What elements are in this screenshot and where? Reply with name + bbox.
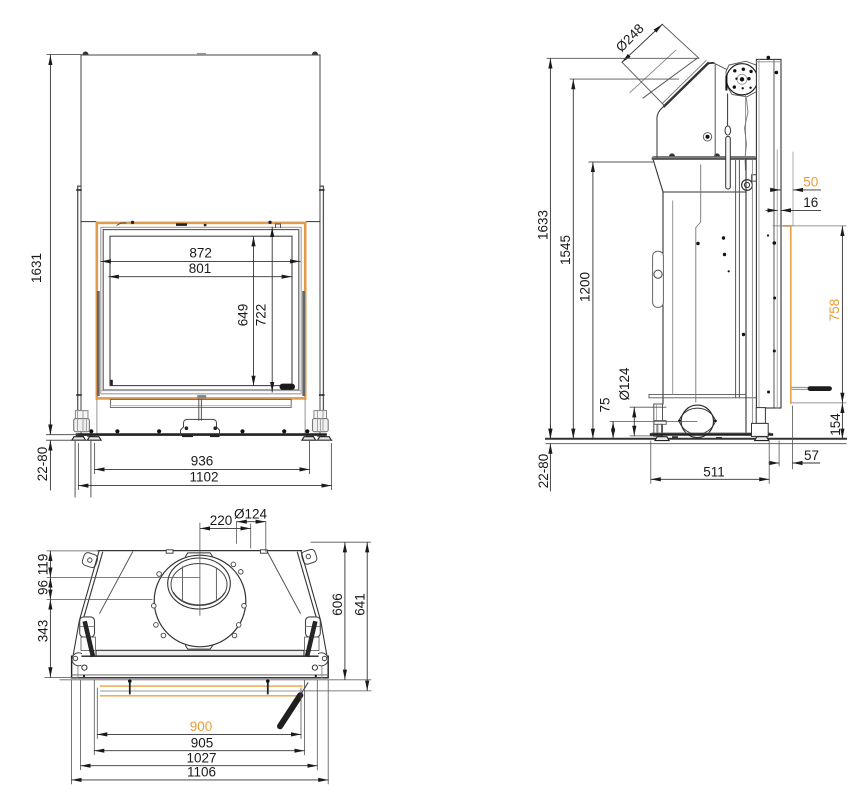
svg-text:905: 905 <box>191 735 214 750</box>
svg-text:343: 343 <box>35 620 50 643</box>
svg-text:900: 900 <box>190 719 213 734</box>
svg-text:1545: 1545 <box>558 235 573 265</box>
svg-text:511: 511 <box>703 465 725 480</box>
svg-text:1102: 1102 <box>189 470 218 485</box>
svg-text:16: 16 <box>803 195 818 210</box>
svg-text:154: 154 <box>828 413 843 436</box>
svg-text:50: 50 <box>803 174 818 189</box>
svg-text:Ø124: Ø124 <box>617 367 632 401</box>
svg-text:1106: 1106 <box>187 765 216 780</box>
svg-text:641: 641 <box>353 593 368 616</box>
svg-text:57: 57 <box>804 448 819 463</box>
svg-text:722: 722 <box>254 304 269 327</box>
svg-text:22-80: 22-80 <box>536 454 551 489</box>
svg-text:872: 872 <box>189 246 212 261</box>
svg-text:1027: 1027 <box>186 750 216 765</box>
svg-text:1631: 1631 <box>29 253 44 283</box>
svg-text:758: 758 <box>827 299 842 322</box>
svg-text:Ø124: Ø124 <box>234 507 268 522</box>
svg-text:936: 936 <box>191 453 214 468</box>
svg-text:Ø248: Ø248 <box>613 21 647 55</box>
svg-text:22-80: 22-80 <box>35 447 50 482</box>
svg-text:75: 75 <box>597 397 612 412</box>
svg-text:119: 119 <box>35 554 50 576</box>
svg-text:220: 220 <box>210 513 233 528</box>
svg-text:649: 649 <box>235 304 250 327</box>
svg-text:1200: 1200 <box>578 272 593 302</box>
svg-text:801: 801 <box>189 261 212 276</box>
svg-text:96: 96 <box>35 580 50 595</box>
svg-text:1633: 1633 <box>535 210 550 240</box>
svg-text:606: 606 <box>330 593 345 616</box>
